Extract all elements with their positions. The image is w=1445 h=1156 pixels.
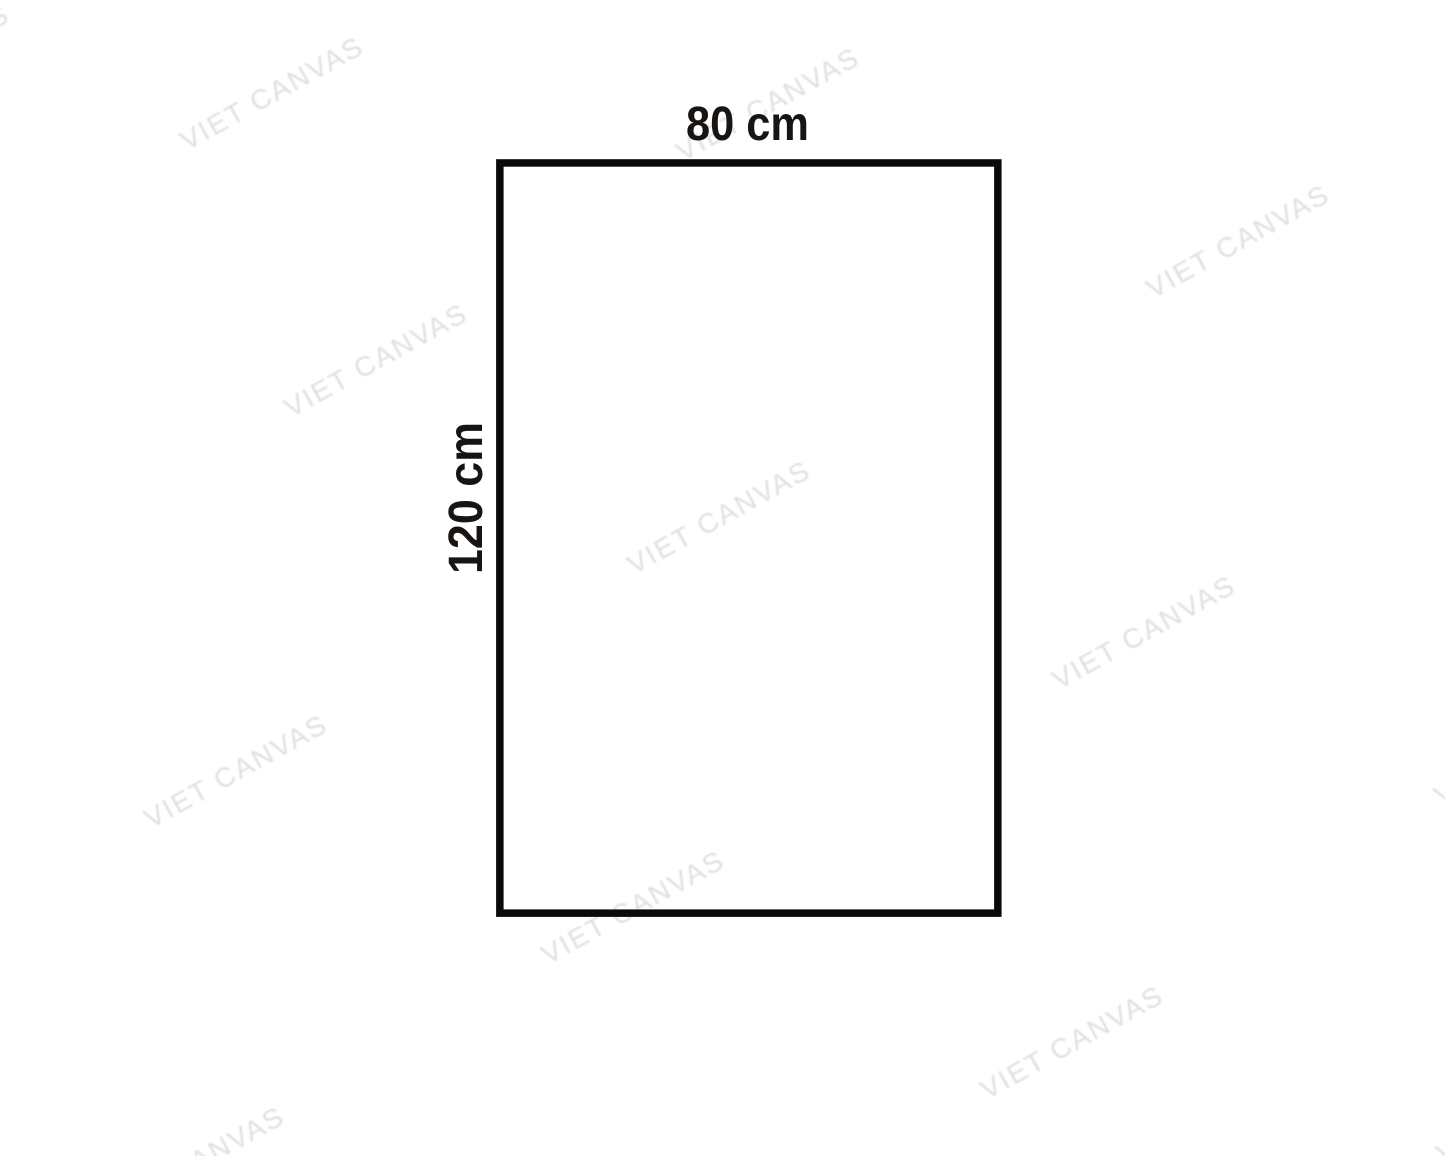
svg-text:80 cm: 80 cm [686, 98, 809, 151]
svg-text:120 cm: 120 cm [440, 422, 493, 574]
